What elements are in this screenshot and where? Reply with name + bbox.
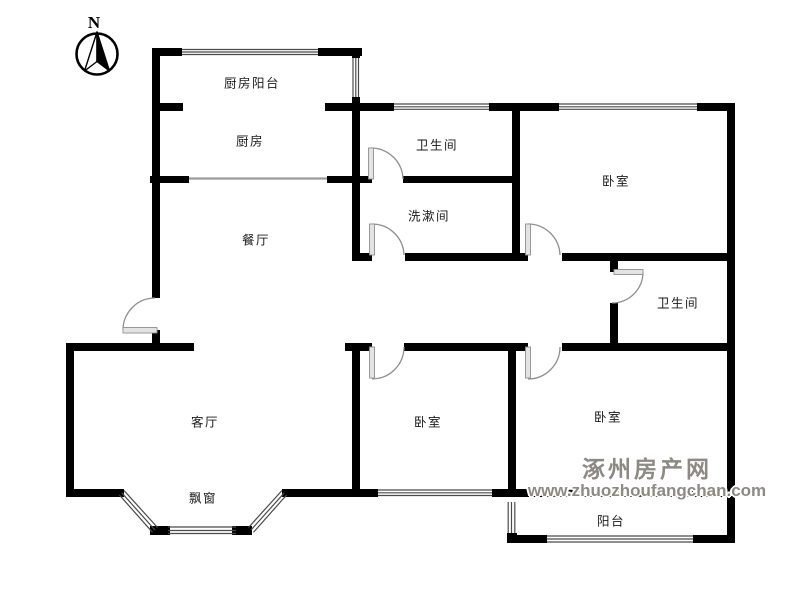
watermark-site-name: 涿州房产网: [518, 457, 776, 482]
bathroom-right-door-leaf: [614, 270, 643, 275]
entry-door-leaf: [123, 328, 157, 334]
room-label-kitchen: 厨房: [236, 131, 264, 150]
bedroom-bottom-right-door-leaf: [526, 347, 531, 378]
compass-north-label: N: [88, 13, 100, 33]
room-label-living-room: 客厅: [191, 412, 219, 431]
room-label-kitchen-balcony: 厨房阳台: [224, 73, 280, 92]
entry-door-arc: [123, 298, 155, 330]
washroom-door-leaf: [370, 224, 375, 255]
washroom-door-arc: [372, 224, 404, 255]
bathroom-top-door-arc: [371, 148, 403, 179]
room-label-bay-window: 飘窗: [189, 488, 217, 507]
room-label-balcony: 阳台: [597, 511, 625, 530]
room-label-washroom: 洗漱间: [408, 206, 450, 225]
room-label-bedroom-bottom-right: 卧室: [594, 407, 622, 426]
floor-plan: N 厨房阳台 厨房 卫生间 洗漱间 卧室 餐厅 卫生间 客厅 卧室 卧室 飘窗 …: [0, 0, 800, 600]
room-label-bathroom-right: 卫生间: [657, 293, 699, 312]
bedroom-bottom-middle-door-arc: [372, 347, 404, 379]
bedroom-top-right-door-arc: [528, 224, 560, 255]
bathroom-right-door-arc: [612, 272, 643, 303]
watermark: 涿州房产网 www.zhuozhoufangchan.com: [518, 457, 776, 501]
room-label-bedroom-top-right: 卧室: [602, 171, 630, 190]
bedroom-bottom-middle-door-leaf: [370, 347, 375, 378]
bathroom-top-door-leaf: [369, 148, 374, 179]
compass-north-icon: [77, 32, 118, 75]
room-label-bedroom-bottom-middle: 卧室: [414, 412, 442, 431]
room-label-dining-room: 餐厅: [242, 230, 270, 249]
room-label-bathroom-top: 卫生间: [416, 135, 458, 154]
bedroom-bottom-right-door-arc: [528, 347, 560, 379]
watermark-site-url: www.zhuozhoufangchan.com: [518, 482, 776, 501]
bedroom-top-right-door-leaf: [526, 224, 531, 255]
